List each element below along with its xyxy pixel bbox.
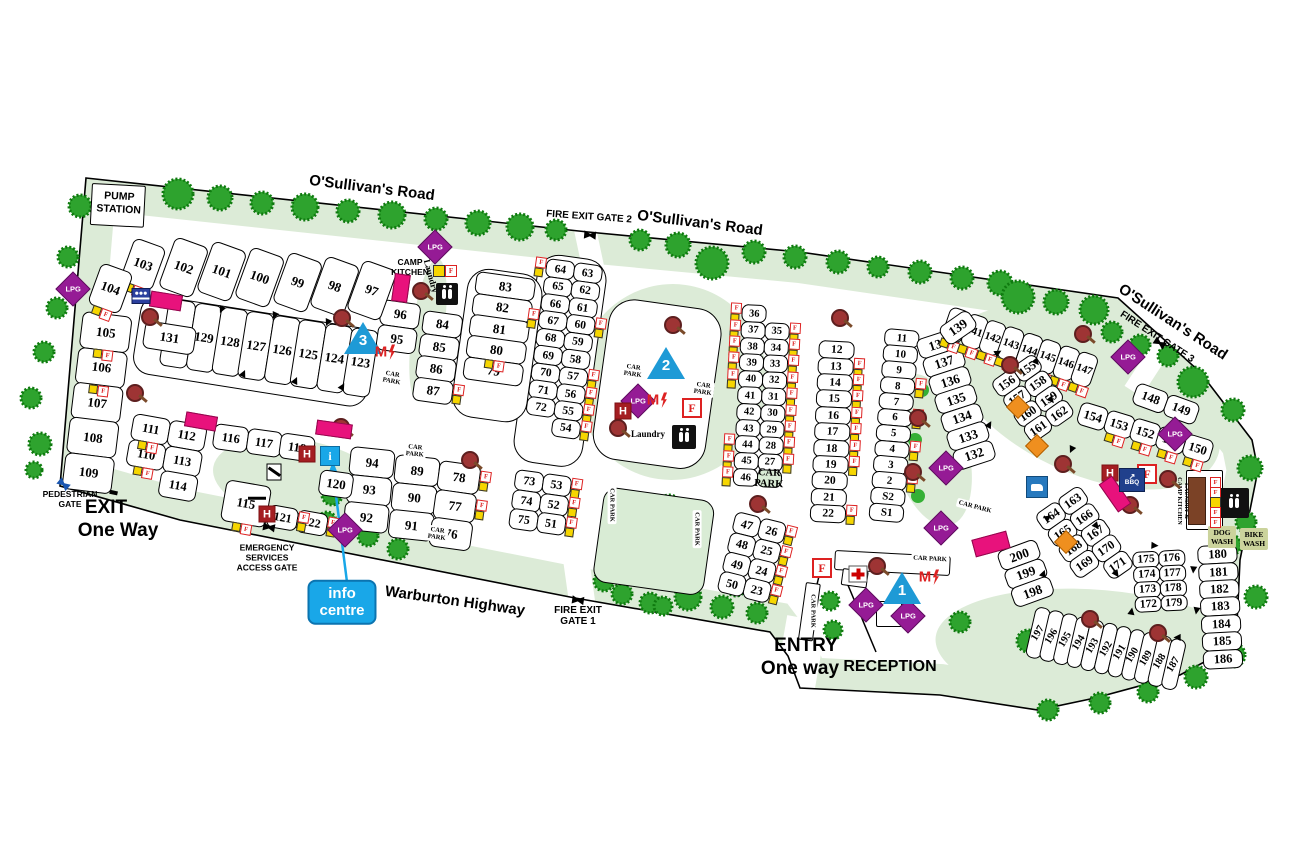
site-number: 183 xyxy=(1211,599,1231,615)
site-number: 100 xyxy=(248,267,272,289)
site-number: 58 xyxy=(569,353,582,366)
yellow-marker-icon xyxy=(848,467,857,476)
site-22: 22F xyxy=(810,504,847,524)
site-number: 64 xyxy=(554,263,567,276)
tree-icon xyxy=(951,267,973,289)
amenities-block-1-icon: 1 xyxy=(883,572,921,604)
site-number: 43 xyxy=(743,423,754,435)
tree-icon xyxy=(630,230,650,250)
yellow-marker-icon xyxy=(526,319,536,329)
site-number: 150 xyxy=(1187,439,1209,459)
site-number: 198 xyxy=(1021,581,1045,603)
site-number: 131 xyxy=(159,329,181,348)
site-number: 48 xyxy=(734,536,749,553)
site-number: 99 xyxy=(289,273,307,292)
site-number: 35 xyxy=(771,326,782,338)
site-number: 6 xyxy=(892,411,899,423)
site-number: 26 xyxy=(764,522,779,539)
site-51: 51F xyxy=(535,511,567,536)
playground-slide-icon xyxy=(267,464,282,481)
water-tap-icon xyxy=(904,463,922,481)
site-row: 87F xyxy=(413,378,454,406)
site-number: 50 xyxy=(724,576,739,593)
f-badge-icon: F xyxy=(727,368,739,380)
fire-extinguisher-badge: F xyxy=(534,256,548,277)
site-number: 174 xyxy=(1138,568,1156,581)
site-number: 37 xyxy=(748,324,759,336)
f-badge-icon: F xyxy=(850,423,862,435)
site-number: 97 xyxy=(363,281,381,300)
site-number: 34 xyxy=(770,342,781,354)
site-number: 74 xyxy=(520,492,534,509)
tree-icon xyxy=(747,603,767,623)
tree-icon xyxy=(208,186,232,210)
label-one-way: One way xyxy=(761,658,839,680)
yellow-marker-icon xyxy=(722,477,731,486)
site-number: 96 xyxy=(393,306,408,324)
label-fire-exit-gate-1: FIRE EXIT GATE 1 xyxy=(554,605,602,627)
f-badge-icon: F xyxy=(787,371,799,383)
water-tap-icon xyxy=(909,409,927,427)
yellow-marker-icon xyxy=(909,452,919,462)
playground-seesaw-icon xyxy=(248,497,266,500)
site-number: 9 xyxy=(896,364,903,376)
site-number: 128 xyxy=(219,333,241,352)
fire-extinguisher-badge: F xyxy=(846,505,858,526)
fire-extinguisher-badge: F xyxy=(526,308,540,329)
site-number: 103 xyxy=(131,254,155,276)
f-badge-icon: F xyxy=(729,335,741,347)
site-number: 5 xyxy=(890,427,897,439)
site-number: 23 xyxy=(749,582,764,599)
site-number: 42 xyxy=(744,406,755,418)
site-number: 77 xyxy=(448,497,463,515)
site-number: 177 xyxy=(1163,567,1181,580)
direction-arrow-icon: ► xyxy=(1149,539,1162,552)
f-badge-icon: F xyxy=(852,390,864,402)
tree-icon xyxy=(1038,700,1058,720)
yellow-marker-icon xyxy=(906,484,916,494)
tree-icon xyxy=(1222,399,1244,421)
site-120: 120 xyxy=(318,469,355,499)
camp-kitchen-stove-icon xyxy=(132,288,151,304)
info-point-icon: i xyxy=(320,446,340,466)
label-car-park: CAR PARK xyxy=(692,510,701,548)
site-number: 39 xyxy=(746,357,757,369)
water-tap-icon xyxy=(609,419,627,437)
site-number: 91 xyxy=(404,517,419,534)
site-172: 172 xyxy=(1135,595,1163,613)
site-number: 69 xyxy=(542,349,555,362)
site-number: 81 xyxy=(492,320,507,338)
tree-icon xyxy=(821,592,839,610)
site-number: 52 xyxy=(547,496,561,513)
site-number: 56 xyxy=(564,387,577,400)
site-number: 67 xyxy=(547,314,560,327)
tree-icon xyxy=(34,342,54,362)
site-number: 31 xyxy=(768,391,779,403)
site-number: 179 xyxy=(1165,597,1183,610)
tree-icon xyxy=(827,251,849,273)
fire-extinguisher-badge: F xyxy=(848,456,860,477)
tree-icon xyxy=(1185,666,1207,688)
f-badge-icon: F xyxy=(141,467,154,480)
tree-icon xyxy=(696,247,728,279)
site-number: 30 xyxy=(767,408,778,420)
site-number: S1 xyxy=(880,506,893,519)
toilets-icon xyxy=(436,283,458,305)
site-number: 186 xyxy=(1213,651,1233,667)
fire-extinguisher-icon: F xyxy=(812,558,832,578)
site-number: 71 xyxy=(537,383,550,396)
site-number: 80 xyxy=(489,341,504,359)
site-number: 24 xyxy=(754,562,769,579)
fire-extinguisher-icon: F xyxy=(682,398,702,418)
f-badge-icon: F xyxy=(785,404,797,416)
toilets-icon xyxy=(672,425,696,449)
site-number: 32 xyxy=(769,375,780,387)
fire-point-icon: F xyxy=(433,265,457,277)
site-186: 186 xyxy=(1203,648,1244,669)
tree-icon xyxy=(1102,322,1122,342)
site-number: 33 xyxy=(770,358,781,370)
site-number: 98 xyxy=(326,277,344,296)
site-number: 126 xyxy=(271,341,293,360)
site-number: 13 xyxy=(830,360,842,373)
tree-icon xyxy=(1178,367,1208,397)
direction-arrow-icon: ► xyxy=(1171,632,1183,644)
tree-icon xyxy=(388,539,408,559)
tree-icon xyxy=(1080,296,1108,324)
f-badge-icon: F xyxy=(846,505,858,517)
site-75: 75 xyxy=(508,508,540,533)
tree-icon xyxy=(546,220,566,240)
site-number: 104 xyxy=(99,278,123,300)
site-number: 18 xyxy=(826,442,838,455)
site-number: 19 xyxy=(825,458,837,471)
water-tap-icon xyxy=(1001,356,1019,374)
f-badge-icon: F xyxy=(849,456,861,468)
label-car-park: CAR PARK xyxy=(621,361,645,380)
site-117: 117 xyxy=(245,428,283,459)
fire-extinguisher-badge: F xyxy=(914,377,927,398)
f-badge-icon: F xyxy=(782,453,794,465)
f-badge-icon: F xyxy=(730,319,742,331)
site-number: 53 xyxy=(549,477,563,494)
power-point-icon: M xyxy=(919,569,940,586)
site-number: 87 xyxy=(426,383,441,401)
f-badge-icon: F xyxy=(722,466,734,478)
f-badge-icon: F xyxy=(97,385,109,397)
site-number: 84 xyxy=(435,316,450,334)
site-109: 109 xyxy=(62,452,116,495)
site-number: 148 xyxy=(1139,388,1162,409)
f-badge-icon: F xyxy=(723,450,735,462)
f-badge-icon: F xyxy=(101,350,113,362)
f-badge-icon: F xyxy=(240,523,253,536)
site-31: 31F xyxy=(760,387,786,406)
site-number: 176 xyxy=(1163,552,1181,565)
label-car-park: CAR PARK xyxy=(607,486,616,524)
tree-icon xyxy=(612,584,632,604)
f-badge-icon: F xyxy=(783,437,795,449)
site-number: 85 xyxy=(432,338,447,356)
tree-icon xyxy=(654,597,672,615)
blk-73-51: 7353F7452F7551F xyxy=(509,470,571,535)
yellow-marker-icon xyxy=(452,395,462,405)
tree-icon xyxy=(1238,456,1262,480)
tree-icon xyxy=(784,246,806,268)
site-54: 54F xyxy=(550,417,581,440)
site-number: 2 xyxy=(886,475,893,487)
site-number: 182 xyxy=(1210,581,1230,597)
tree-icon xyxy=(379,202,405,228)
site-number: 57 xyxy=(566,370,579,383)
site-number: 112 xyxy=(176,427,196,445)
site-number: 113 xyxy=(172,452,192,470)
tree-icon xyxy=(868,257,888,277)
site-number: 28 xyxy=(765,440,776,452)
site-number: 61 xyxy=(576,301,589,314)
site-row: 22F xyxy=(811,505,846,523)
label-emergency-services-access-gate: EMERGENCY SERVICES ACCESS GATE xyxy=(237,543,298,572)
site-number: 44 xyxy=(742,439,753,451)
fire-extinguisher-badge: F xyxy=(92,349,113,362)
f-badge-icon: F xyxy=(731,303,743,315)
site-number: 51 xyxy=(544,516,558,533)
site-number: 180 xyxy=(1208,547,1228,563)
site-number: 72 xyxy=(534,401,547,414)
site-number: 94 xyxy=(365,454,380,471)
site-number: 105 xyxy=(95,323,116,341)
fire-hydrant-icon: H xyxy=(299,446,316,463)
site-number: 46 xyxy=(740,472,751,484)
label-pedestrian-gate: PEDESTRIAN GATE xyxy=(43,490,98,510)
site-number: 83 xyxy=(498,278,513,296)
site-116: 116 xyxy=(212,423,250,454)
power-point-icon: M xyxy=(375,344,396,361)
water-tap-icon xyxy=(831,309,849,327)
site-number: 16 xyxy=(827,409,839,422)
yellow-marker-icon xyxy=(593,328,603,338)
fire-hydrant-icon: H xyxy=(259,506,276,523)
site-number: 185 xyxy=(1212,634,1232,650)
site-number: 120 xyxy=(325,475,347,494)
site-number: 65 xyxy=(551,280,564,293)
site-number: 175 xyxy=(1137,553,1155,566)
f-badge-icon: F xyxy=(789,322,801,334)
label-car-park: CAR PARK xyxy=(691,379,715,398)
yellow-marker-icon xyxy=(474,510,484,520)
site-number: 7 xyxy=(893,396,900,408)
water-tap-icon xyxy=(141,308,159,326)
site-number: 181 xyxy=(1209,564,1229,580)
site-number: 172 xyxy=(1139,598,1157,611)
site-number: 63 xyxy=(581,267,594,280)
tree-icon xyxy=(666,233,690,257)
laundry-f-marker: F xyxy=(1210,517,1221,528)
site-number: 153 xyxy=(1108,415,1130,435)
direction-arrow-icon: ► xyxy=(1190,604,1204,618)
site-row: 172179 xyxy=(1135,595,1187,613)
yellow-marker-icon xyxy=(296,522,306,532)
site-number: 8 xyxy=(895,380,902,392)
site-number: 68 xyxy=(544,332,557,345)
label-one-way: One Way xyxy=(78,520,159,542)
f-badge-icon: F xyxy=(493,361,505,373)
site-number: 75 xyxy=(517,512,531,529)
tree-icon xyxy=(711,596,733,618)
site-number: 178 xyxy=(1164,582,1182,595)
site-number: 184 xyxy=(1212,616,1232,632)
site-number: 54 xyxy=(559,422,572,435)
site-number: 70 xyxy=(539,366,552,379)
site-number: 117 xyxy=(254,434,274,451)
tree-icon xyxy=(425,208,447,230)
site-row: 186 xyxy=(1203,649,1242,668)
gate-marker-icon: ▶◀ xyxy=(584,229,592,241)
f-badge-icon: F xyxy=(851,407,863,419)
site-row: S1 xyxy=(869,503,904,522)
direction-arrow-icon: ► xyxy=(1188,564,1201,577)
yellow-marker-icon xyxy=(914,388,924,398)
tree-icon xyxy=(1044,290,1068,314)
yellow-marker-icon xyxy=(727,379,736,388)
tree-icon xyxy=(29,433,51,455)
site-number: 124 xyxy=(323,349,345,368)
site-number: 20 xyxy=(824,475,836,488)
amenities-block-2-icon: 2 xyxy=(647,347,685,379)
site-number: 21 xyxy=(823,491,835,504)
yellow-marker-icon xyxy=(534,267,544,277)
water-tap-icon xyxy=(126,384,144,402)
fire-hydrant-icon: H xyxy=(615,403,632,420)
site-number: 86 xyxy=(429,360,444,378)
site-number: 173 xyxy=(1139,583,1157,596)
site-number: 116 xyxy=(221,430,241,447)
yellow-marker-icon xyxy=(478,482,488,492)
laundry-building xyxy=(1188,477,1206,525)
site-number: 90 xyxy=(407,490,422,507)
label-pump-station: PUMP STATION xyxy=(96,189,142,216)
tree-icon xyxy=(337,200,359,222)
label-car-park: CAR PARK xyxy=(403,442,426,460)
yellow-marker-icon xyxy=(846,516,855,525)
toilets-icon xyxy=(1219,488,1249,518)
site-number: 36 xyxy=(749,308,760,320)
water-tap-icon xyxy=(412,282,430,300)
site-number: 14 xyxy=(829,377,841,390)
site-number: 114 xyxy=(168,477,188,495)
site-number: 25 xyxy=(759,542,774,559)
wash-bay-label: DOG WASH xyxy=(1208,526,1236,548)
yellow-marker-icon xyxy=(782,464,791,473)
site-number: 38 xyxy=(747,341,758,353)
yellow-marker-icon xyxy=(579,431,589,441)
caravan-park-site-map: 105F106F10710810913012912812712612512412… xyxy=(0,0,1312,845)
f-badge-icon: F xyxy=(728,352,740,364)
site-number: 41 xyxy=(744,390,755,402)
f-badge-icon: F xyxy=(850,439,862,451)
site-number: 40 xyxy=(745,374,756,386)
site-number: 152 xyxy=(1134,423,1156,443)
site-number: 147 xyxy=(1075,361,1095,378)
site-number: 12 xyxy=(831,344,843,357)
site-number: 4 xyxy=(889,443,896,455)
fire-extinguisher-badge: F xyxy=(727,368,739,389)
tree-icon xyxy=(950,612,970,632)
tree-icon xyxy=(466,211,490,235)
site-number: 55 xyxy=(562,404,575,417)
tree-icon xyxy=(21,388,41,408)
f-badge-icon: F xyxy=(788,338,800,350)
site-number: 125 xyxy=(297,345,319,364)
tree-icon xyxy=(58,247,78,267)
site-number: 102 xyxy=(172,257,196,279)
first-aid-icon xyxy=(849,566,868,583)
site-number: 47 xyxy=(739,516,754,533)
site-number: 78 xyxy=(451,469,466,487)
site-179: 179 xyxy=(1160,594,1188,612)
f-badge-icon: F xyxy=(786,388,798,400)
fire-extinguisher-badge: F xyxy=(782,453,794,474)
info-centre-label: info centre xyxy=(307,580,376,625)
tree-icon xyxy=(292,194,318,220)
car-park-cell: CAR PARK xyxy=(756,469,782,488)
site-number: 82 xyxy=(495,299,510,317)
site-number: 22 xyxy=(822,508,834,521)
site-row: 109 xyxy=(62,453,114,494)
fire-extinguisher-badge: F xyxy=(909,441,922,462)
site-row: 46FCAR PARK xyxy=(734,469,782,488)
tree-icon xyxy=(1002,281,1034,313)
water-tap-icon xyxy=(1159,470,1177,488)
site-number: 60 xyxy=(574,318,587,331)
tree-icon xyxy=(1245,586,1267,608)
grid-172-179: 175176174177173178172179 xyxy=(1133,550,1187,612)
f-badge-icon: F xyxy=(853,374,865,386)
bbq-icon: ↗BBQ xyxy=(1119,468,1145,492)
site-number: 109 xyxy=(78,464,99,482)
fire-extinguisher-badge: F xyxy=(88,384,109,397)
site-number: 66 xyxy=(549,297,562,310)
site-number: 121 xyxy=(272,509,292,527)
tree-icon xyxy=(26,462,42,478)
site-number: 59 xyxy=(571,336,584,349)
f-badge-icon: F xyxy=(787,355,799,367)
site-number: 49 xyxy=(729,556,744,573)
water-tap-icon xyxy=(1149,624,1167,642)
dump-point-icon xyxy=(1026,476,1048,498)
site-number: 73 xyxy=(522,473,536,490)
tree-icon xyxy=(909,261,931,283)
site-number: 132 xyxy=(962,444,985,465)
site-number: 45 xyxy=(741,455,752,467)
tree-icon xyxy=(251,192,273,214)
yellow-marker-icon xyxy=(564,527,574,537)
power-point-icon: M xyxy=(647,392,668,409)
site-number: 123 xyxy=(350,353,372,372)
site-number: 93 xyxy=(362,482,377,499)
site-number: 15 xyxy=(828,393,840,406)
fire-extinguisher-badge: F xyxy=(722,466,734,487)
water-tap-icon xyxy=(1074,325,1092,343)
direction-arrow-icon: ► xyxy=(1124,604,1138,618)
site-S1: S1 xyxy=(869,502,905,522)
site-number: 89 xyxy=(410,462,425,479)
f-badge-icon: F xyxy=(724,434,736,446)
site-number: 11 xyxy=(896,332,907,345)
